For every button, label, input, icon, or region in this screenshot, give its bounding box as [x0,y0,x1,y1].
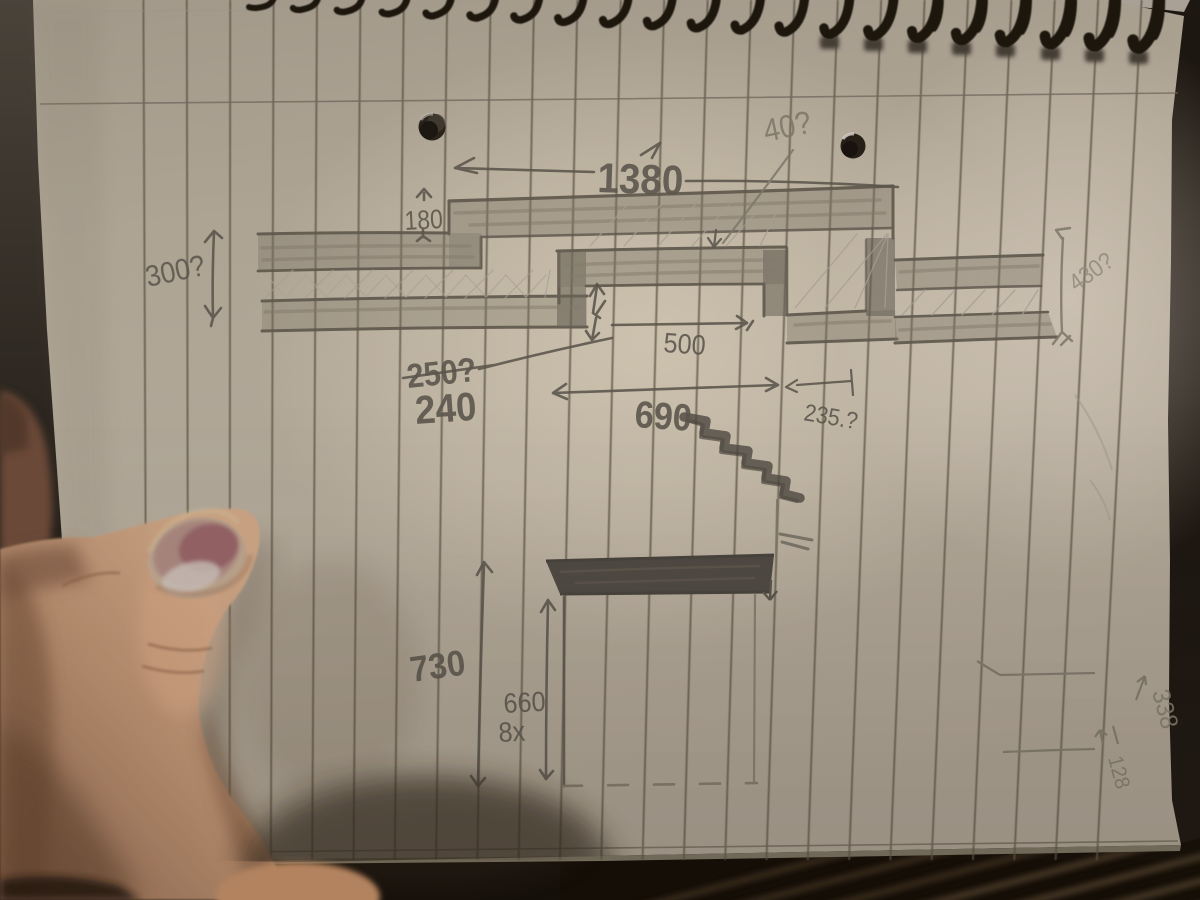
svg-text:500: 500 [663,327,707,361]
svg-text:1380: 1380 [597,154,685,205]
svg-text:180: 180 [404,204,444,236]
